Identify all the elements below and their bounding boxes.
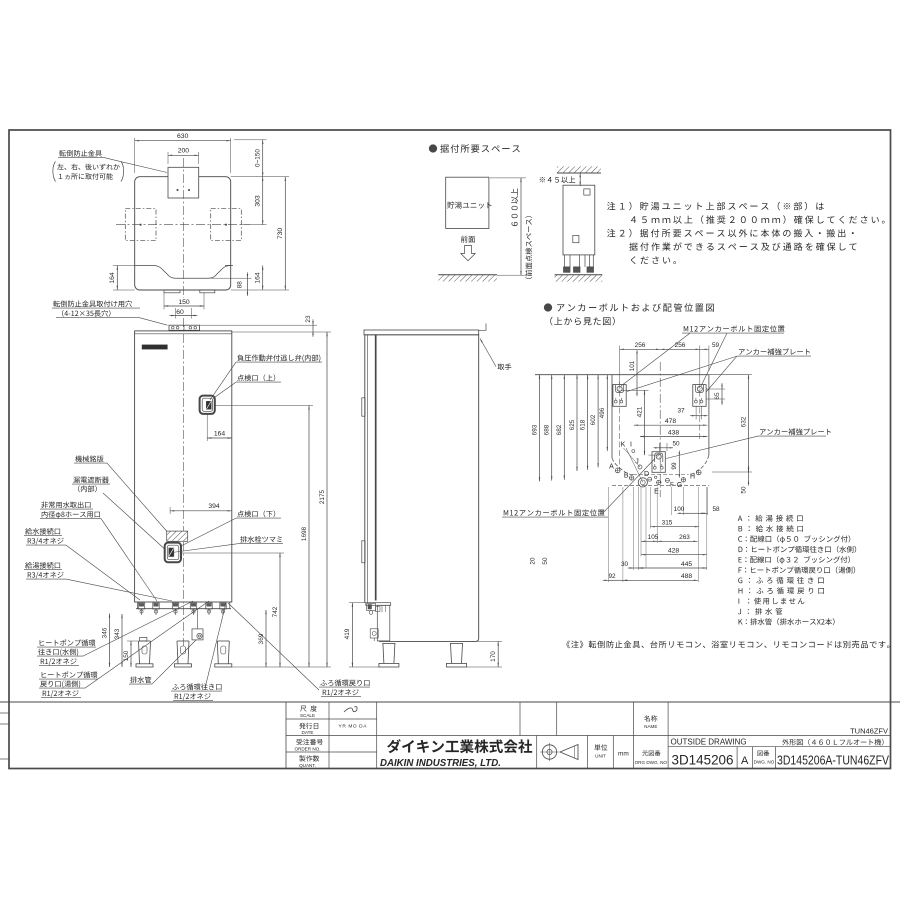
svg-text:DATE: DATE: [302, 730, 314, 735]
svg-text:421: 421: [636, 406, 643, 417]
svg-text:SCALE: SCALE: [300, 713, 315, 718]
svg-text:3D145206A-TUN46ZFV: 3D145206A-TUN46ZFV: [777, 754, 889, 768]
svg-text:445: 445: [681, 561, 693, 568]
svg-text:D: D: [644, 471, 649, 478]
svg-text:101: 101: [629, 360, 636, 371]
svg-text:682: 682: [556, 424, 563, 435]
svg-text:OUTSIDE DRAWING: OUTSIDE DRAWING: [671, 737, 747, 746]
svg-text:105: 105: [648, 534, 659, 541]
svg-text:YR MO DA: YR MO DA: [339, 724, 368, 730]
svg-text:QUANT.: QUANT.: [299, 763, 316, 768]
svg-text:438: 438: [668, 429, 680, 436]
svg-text:688: 688: [544, 424, 551, 435]
svg-text:A: A: [609, 464, 614, 471]
svg-text:200: 200: [178, 148, 190, 155]
svg-text:100: 100: [674, 506, 685, 513]
svg-text:742: 742: [272, 606, 279, 617]
svg-text:263: 263: [679, 534, 690, 541]
svg-text:632: 632: [740, 416, 747, 427]
svg-text:625: 625: [569, 419, 576, 430]
svg-text:60: 60: [176, 309, 184, 316]
svg-text:65: 65: [714, 392, 721, 400]
svg-text:K: K: [621, 442, 626, 449]
svg-text:UNIT: UNIT: [595, 754, 606, 759]
svg-text:602: 602: [590, 414, 597, 425]
svg-text:256: 256: [635, 342, 646, 349]
svg-text:150: 150: [178, 299, 190, 306]
svg-text:0~150: 0~150: [254, 149, 261, 167]
svg-text:394: 394: [208, 503, 220, 510]
svg-text:B: B: [624, 473, 629, 480]
svg-text:2175: 2175: [319, 489, 326, 504]
svg-text:F: F: [670, 482, 674, 489]
svg-text:730: 730: [277, 228, 284, 240]
svg-text:88: 88: [237, 281, 244, 289]
svg-text:20: 20: [530, 557, 537, 565]
svg-text:630: 630: [177, 133, 189, 140]
svg-text:59: 59: [712, 342, 720, 349]
svg-text:23: 23: [305, 315, 312, 323]
svg-text:37: 37: [677, 408, 685, 415]
svg-text:50: 50: [542, 557, 549, 565]
svg-text:99: 99: [671, 462, 678, 470]
svg-text:496: 496: [599, 407, 606, 418]
svg-text:92: 92: [608, 573, 616, 580]
svg-text:164: 164: [214, 431, 226, 438]
svg-text:50: 50: [672, 441, 680, 448]
svg-text:693: 693: [531, 424, 538, 435]
svg-text:618: 618: [579, 419, 586, 430]
svg-text:488: 488: [681, 573, 693, 580]
svg-text:I: I: [630, 442, 632, 449]
svg-text:1698: 1698: [301, 526, 308, 541]
svg-text:150: 150: [123, 650, 130, 661]
svg-text:164: 164: [254, 272, 261, 284]
svg-text:50: 50: [740, 486, 747, 494]
svg-text:428: 428: [668, 548, 680, 555]
svg-text:315: 315: [662, 520, 673, 527]
svg-text:mm: mm: [618, 751, 629, 758]
svg-text:E: E: [654, 489, 659, 496]
svg-text:H: H: [690, 474, 695, 481]
svg-text:170: 170: [490, 651, 497, 662]
svg-text:58: 58: [712, 506, 720, 513]
svg-text:346: 346: [101, 627, 108, 638]
svg-text:TUN46ZFV: TUN46ZFV: [850, 727, 888, 736]
svg-text:DAIKIN INDUSTRIES, LTD.: DAIKIN INDUSTRIES, LTD.: [380, 758, 501, 769]
svg-text:G: G: [677, 482, 682, 489]
svg-text:3D145206: 3D145206: [672, 753, 734, 768]
svg-text:419: 419: [344, 628, 351, 639]
svg-text:303: 303: [254, 195, 261, 207]
svg-text:256: 256: [675, 342, 686, 349]
svg-text:369: 369: [258, 633, 265, 644]
svg-text:30: 30: [621, 561, 629, 568]
svg-text:ORG DWG. NO: ORG DWG. NO: [635, 760, 668, 765]
svg-text:NAME: NAME: [644, 724, 657, 729]
svg-text:A: A: [741, 755, 749, 767]
svg-text:478: 478: [665, 418, 677, 425]
svg-text:164: 164: [109, 272, 116, 284]
svg-text:343: 343: [114, 628, 121, 639]
svg-text:ORDER NO.: ORDER NO.: [294, 747, 320, 752]
svg-text:DWG. NO: DWG. NO: [754, 760, 775, 765]
